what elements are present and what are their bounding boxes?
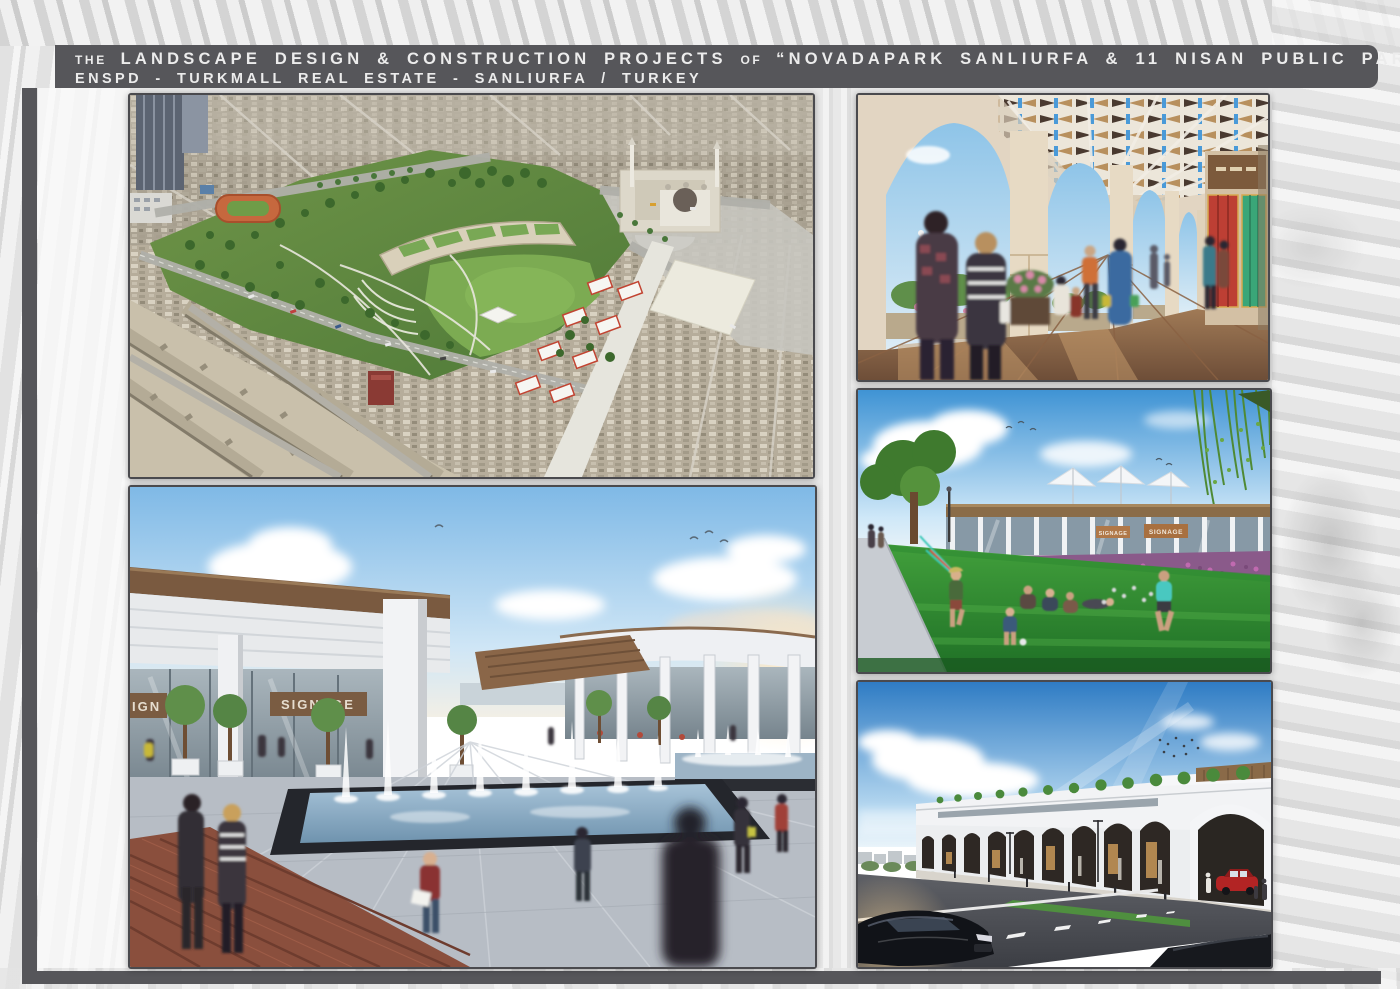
background-map-collage-left [0,46,125,989]
portfolio-page: THE LANDSCAPE DESIGN & CONSTRUCTION PROJ… [0,0,1400,989]
background-map-collage-top [0,0,1400,46]
background-left-margin [38,88,130,968]
title-quoted: “NOVADAPARK SANLIURFA & 11 NISAN PUBLIC … [776,50,1400,68]
header-bar: THE LANDSCAPE DESIGN & CONSTRUCTION PROJ… [55,45,1378,88]
lawn-signage-right: SIGNAGE [1149,529,1183,536]
project-subtitle: ENSPD - TURKMALL REAL ESTATE - SANLIURFA… [75,70,1378,88]
lawn-signage-left: SIGNAGE [1099,531,1128,537]
street-illustration [858,682,1271,967]
rendering-arcade-walkway [856,93,1270,382]
background-map-collage-middle [815,88,858,968]
fountain-illustration: IGN SIGNAGE [130,487,815,967]
flower-planter [1006,270,1054,325]
aerial-illustration [130,95,813,477]
arcade-illustration [858,95,1268,380]
rendering-fountain-plaza: IGN SIGNAGE [128,485,817,969]
bottom-frame-bar [22,971,1381,984]
lawn-illustration: SIGNAGE SIGNAGE [858,390,1270,672]
rendering-lawn-pavilion: SIGNAGE SIGNAGE [856,388,1272,674]
title-article: THE [75,53,107,67]
rendering-aerial-masterplan [128,93,815,479]
title-of: OF [740,53,762,67]
fountain-signage-partial: IGN [132,699,161,714]
background-map-collage-right [1272,0,1400,989]
title-main: LANDSCAPE DESIGN & CONSTRUCTION PROJECTS [121,50,727,68]
project-title: THE LANDSCAPE DESIGN & CONSTRUCTION PROJ… [75,50,1378,70]
left-frame-bar [22,88,37,984]
rendering-street-facade [856,680,1273,969]
